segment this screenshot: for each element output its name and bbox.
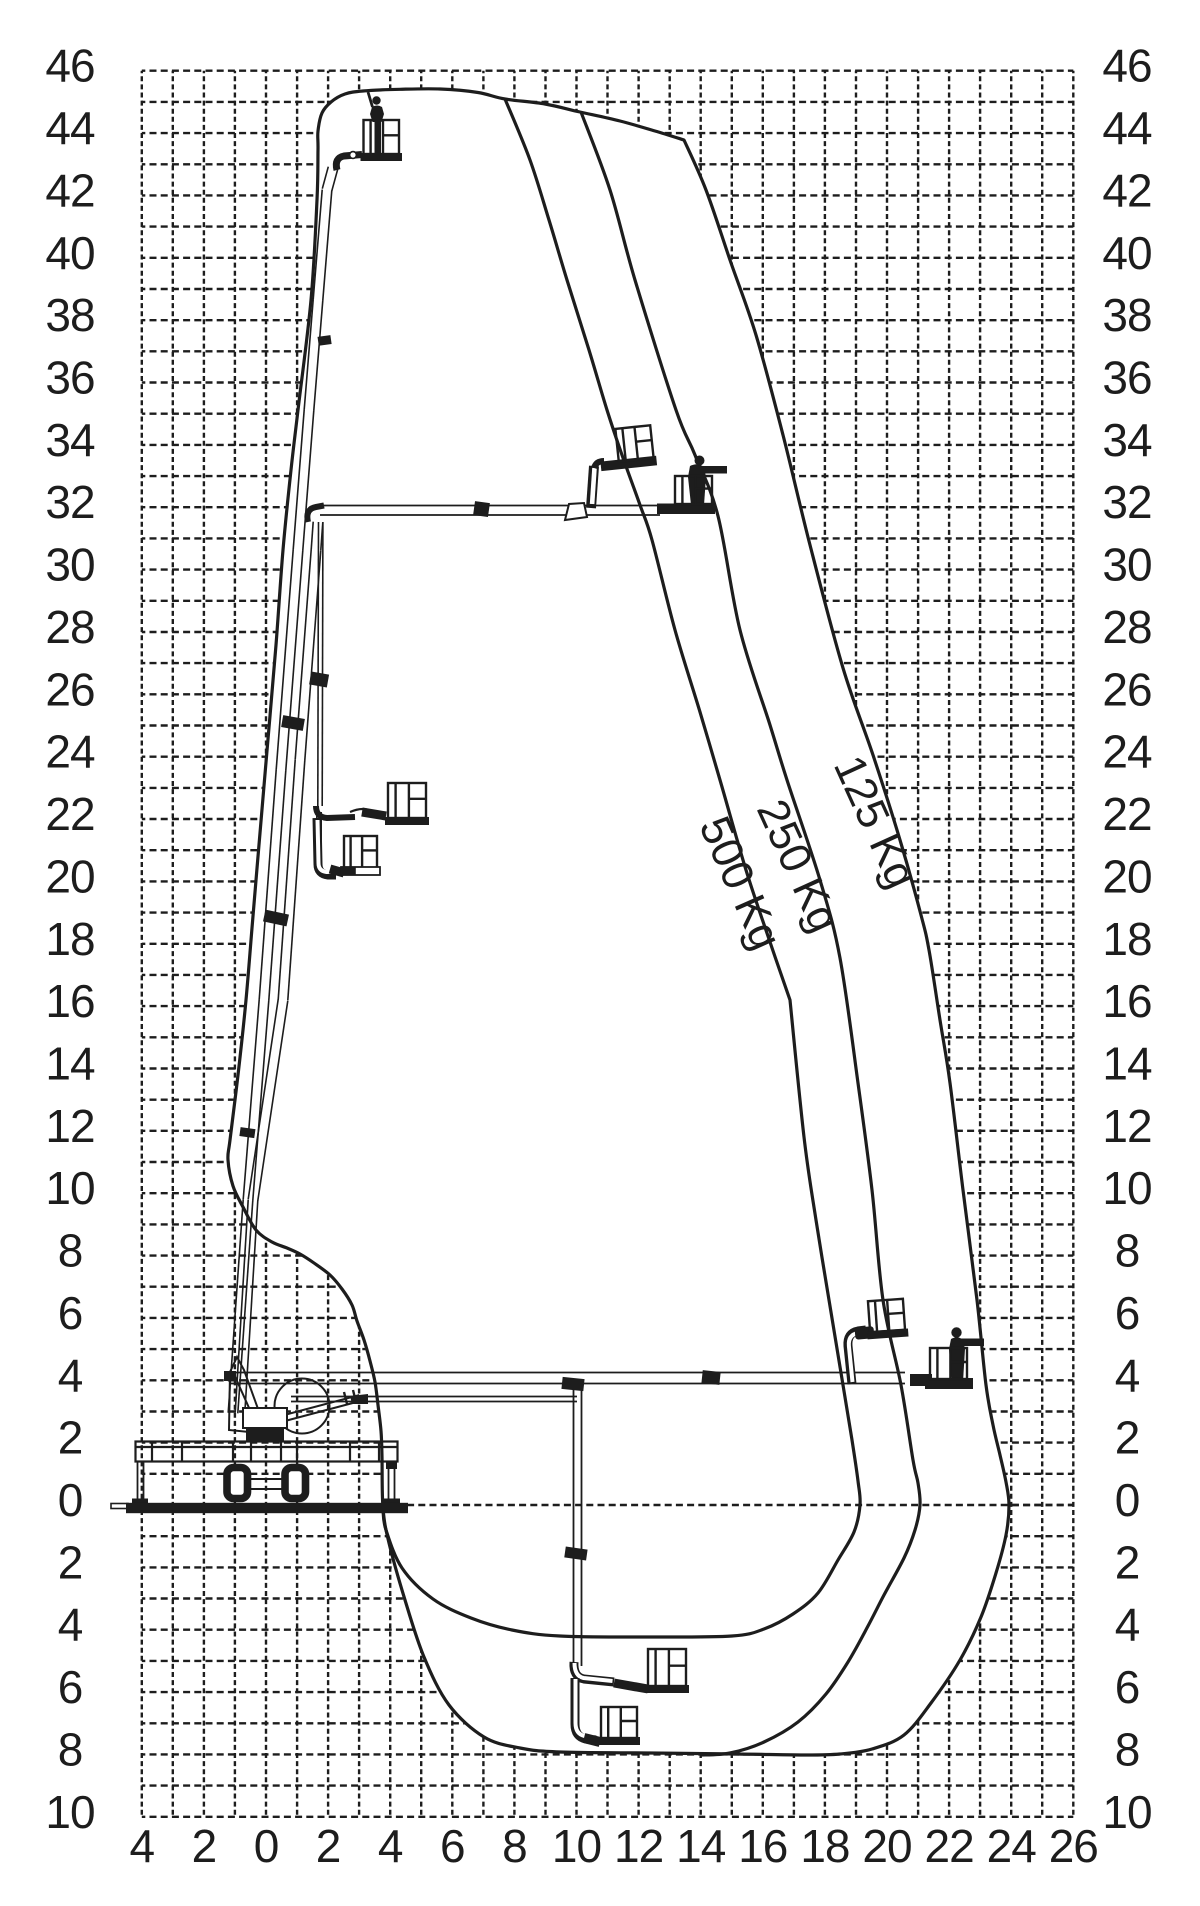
svg-text:26: 26 (1102, 663, 1151, 715)
svg-text:30: 30 (1102, 539, 1151, 591)
svg-text:2: 2 (192, 1820, 217, 1872)
svg-text:6: 6 (58, 1287, 83, 1339)
svg-text:4: 4 (1115, 1599, 1140, 1651)
svg-text:42: 42 (45, 164, 94, 216)
svg-text:14: 14 (45, 1038, 95, 1090)
svg-text:24: 24 (1102, 726, 1152, 778)
svg-text:36: 36 (45, 352, 94, 404)
svg-text:20: 20 (1102, 850, 1151, 902)
svg-text:2: 2 (1115, 1412, 1140, 1464)
svg-text:6: 6 (440, 1820, 465, 1872)
svg-text:22: 22 (925, 1820, 974, 1872)
svg-text:26: 26 (1049, 1820, 1098, 1872)
svg-text:38: 38 (1102, 289, 1151, 341)
svg-text:34: 34 (45, 414, 95, 466)
svg-text:28: 28 (45, 601, 94, 653)
svg-text:2: 2 (58, 1412, 83, 1464)
svg-text:28: 28 (1102, 601, 1151, 653)
svg-text:32: 32 (1102, 476, 1151, 528)
svg-text:0: 0 (254, 1820, 279, 1872)
svg-text:2: 2 (1115, 1536, 1140, 1588)
svg-text:8: 8 (1115, 1225, 1140, 1277)
svg-text:4: 4 (378, 1820, 403, 1872)
svg-text:8: 8 (502, 1820, 527, 1872)
svg-text:6: 6 (58, 1661, 83, 1713)
svg-text:46: 46 (45, 40, 94, 92)
svg-text:30: 30 (45, 539, 94, 591)
svg-text:10: 10 (1102, 1162, 1151, 1214)
svg-text:4: 4 (1115, 1349, 1140, 1401)
svg-text:44: 44 (45, 102, 95, 154)
svg-text:22: 22 (1102, 788, 1151, 840)
svg-text:0: 0 (1115, 1474, 1140, 1526)
svg-text:16: 16 (738, 1820, 787, 1872)
svg-text:2: 2 (316, 1820, 341, 1872)
svg-text:20: 20 (862, 1820, 911, 1872)
svg-text:36: 36 (1102, 352, 1151, 404)
svg-text:10: 10 (45, 1162, 94, 1214)
svg-text:12: 12 (45, 1100, 94, 1152)
svg-text:8: 8 (58, 1225, 83, 1277)
svg-text:14: 14 (676, 1820, 726, 1872)
svg-text:6: 6 (1115, 1661, 1140, 1713)
svg-text:38: 38 (45, 289, 94, 341)
svg-text:16: 16 (1102, 975, 1151, 1027)
svg-text:40: 40 (45, 227, 94, 279)
svg-text:4: 4 (58, 1599, 83, 1651)
svg-text:12: 12 (614, 1820, 663, 1872)
svg-text:42: 42 (1102, 164, 1151, 216)
svg-text:6: 6 (1115, 1287, 1140, 1339)
svg-text:24: 24 (987, 1820, 1037, 1872)
svg-text:8: 8 (1115, 1723, 1140, 1775)
svg-text:10: 10 (45, 1786, 94, 1838)
svg-text:22: 22 (45, 788, 94, 840)
svg-text:32: 32 (45, 476, 94, 528)
svg-text:10: 10 (552, 1820, 601, 1872)
svg-text:10: 10 (1102, 1786, 1151, 1838)
svg-text:40: 40 (1102, 227, 1151, 279)
svg-text:0: 0 (58, 1474, 83, 1526)
svg-text:16: 16 (45, 975, 94, 1027)
svg-text:18: 18 (45, 913, 94, 965)
svg-text:46: 46 (1102, 40, 1151, 92)
svg-text:20: 20 (45, 850, 94, 902)
svg-text:18: 18 (1102, 913, 1151, 965)
svg-text:34: 34 (1102, 414, 1152, 466)
svg-text:4: 4 (130, 1820, 155, 1872)
svg-text:44: 44 (1102, 102, 1152, 154)
svg-text:2: 2 (58, 1536, 83, 1588)
svg-text:14: 14 (1102, 1038, 1152, 1090)
svg-text:12: 12 (1102, 1100, 1151, 1152)
svg-text:26: 26 (45, 663, 94, 715)
svg-text:8: 8 (58, 1723, 83, 1775)
svg-text:24: 24 (45, 726, 95, 778)
svg-text:18: 18 (800, 1820, 849, 1872)
svg-text:4: 4 (58, 1349, 83, 1401)
